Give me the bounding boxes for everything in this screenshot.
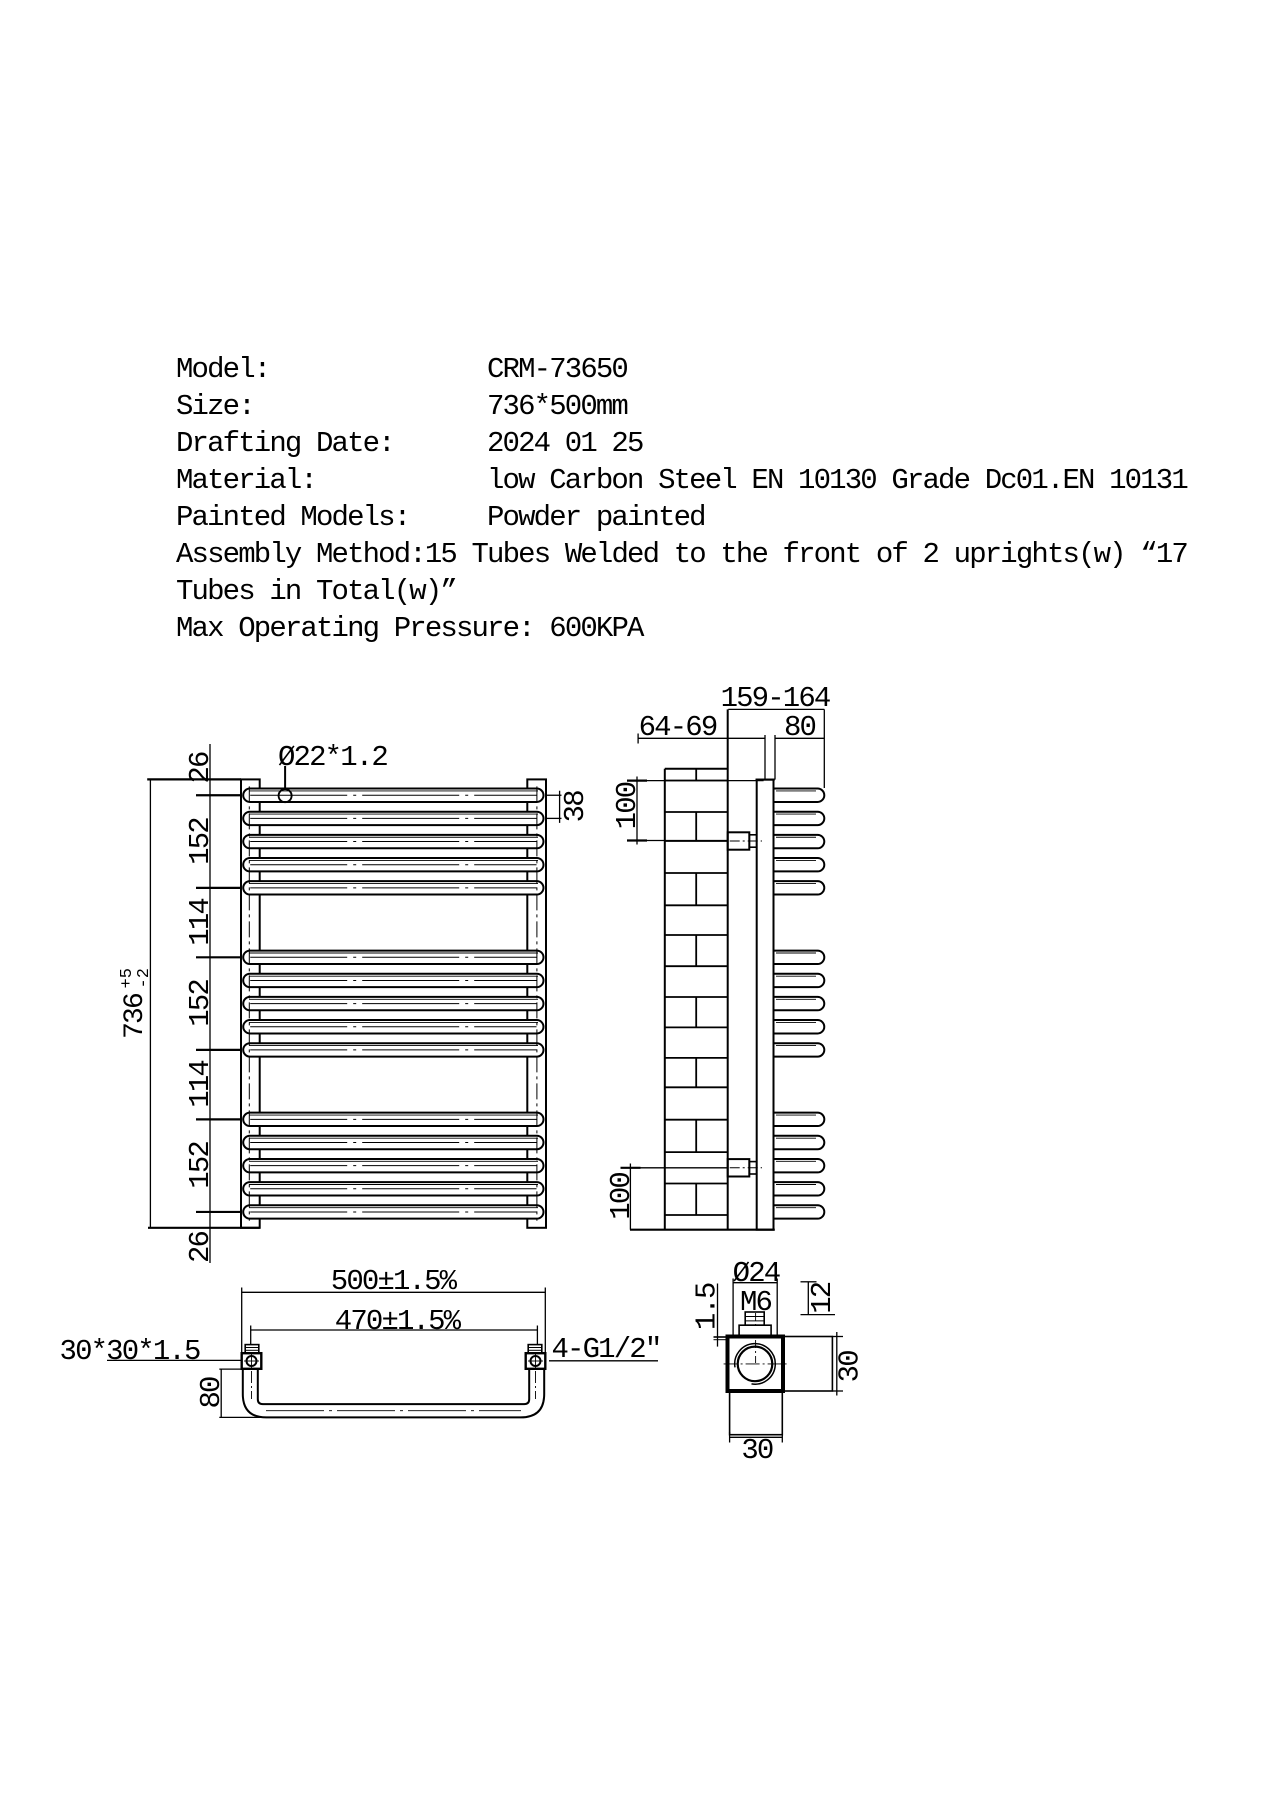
- svg-text:Material:: Material:: [176, 464, 316, 497]
- svg-text:80: 80: [195, 1377, 228, 1409]
- svg-text:Assembly Method:15 Tubes Welde: Assembly Method:15 Tubes Welded to the f…: [176, 538, 1187, 571]
- svg-text:470±1.5%: 470±1.5%: [335, 1305, 462, 1338]
- svg-text:152: 152: [184, 980, 217, 1027]
- svg-text:Painted Models:: Painted Models:: [176, 501, 409, 534]
- svg-text:736: 736: [120, 994, 151, 1039]
- svg-text:100: 100: [611, 782, 644, 829]
- svg-text:114: 114: [184, 1061, 217, 1108]
- svg-text:30: 30: [741, 1434, 773, 1467]
- svg-text:Drafting Date:: Drafting Date:: [176, 427, 394, 460]
- svg-text:152: 152: [184, 818, 217, 865]
- svg-text:30: 30: [834, 1351, 867, 1383]
- svg-text:Model:: Model:: [176, 353, 269, 386]
- svg-text:100: 100: [605, 1173, 638, 1220]
- svg-text:Ø22*1.2: Ø22*1.2: [278, 741, 387, 774]
- svg-text:736*500mm: 736*500mm: [487, 390, 627, 423]
- svg-text:64-69: 64-69: [639, 711, 717, 744]
- svg-text:-2: -2: [135, 968, 154, 988]
- svg-text:Tubes in Total(w)”: Tubes in Total(w)”: [176, 575, 456, 608]
- svg-text:Max Operating Pressure: 600KPA: Max Operating Pressure: 600KPA: [176, 612, 645, 645]
- svg-text:2024 01 25: 2024 01 25: [487, 427, 643, 460]
- svg-text:low Carbon Steel EN 10130 Grad: low Carbon Steel EN 10130 Grade Dc01.EN …: [487, 464, 1187, 497]
- svg-text:26: 26: [184, 752, 217, 784]
- svg-text:30*30*1.5: 30*30*1.5: [60, 1335, 200, 1368]
- svg-text:Powder painted: Powder painted: [487, 501, 705, 534]
- svg-text:114: 114: [184, 899, 217, 946]
- svg-text:152: 152: [184, 1142, 217, 1189]
- svg-text:Size:: Size:: [176, 390, 254, 423]
- svg-text:CRM-73650: CRM-73650: [487, 353, 627, 386]
- svg-text:12: 12: [806, 1282, 839, 1314]
- svg-text:38: 38: [559, 791, 592, 823]
- svg-text:80: 80: [784, 711, 816, 744]
- svg-text:500±1.5%: 500±1.5%: [331, 1265, 458, 1298]
- svg-text:1.5: 1.5: [691, 1283, 724, 1330]
- svg-text:26: 26: [184, 1232, 217, 1264]
